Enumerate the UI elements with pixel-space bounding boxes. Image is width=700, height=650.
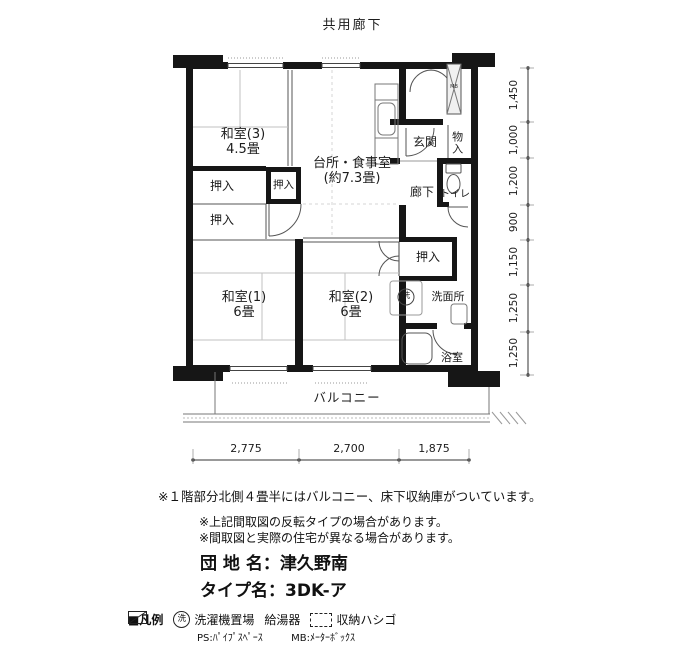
room-toilet: トイレ [438, 189, 472, 201]
closet-d-label: 押入 [403, 251, 453, 265]
dim-right-6: 1,250 [508, 323, 520, 383]
note-line-1: ※１階部分北側４畳半にはバルコニー、床下収納庫がついています。 [158, 486, 541, 505]
window-kitchen [322, 64, 360, 68]
room-yokushitsu: 浴室 [430, 352, 474, 365]
closet-a-label: 押入 [197, 180, 247, 194]
note-line-3: ※間取図と実際の住宅が異なる場合があります。 [199, 529, 460, 546]
room-washitsu2: 和室(2) 6畳 [301, 291, 401, 321]
window-washitsu3 [228, 64, 283, 68]
closet-d-wall-bottom [399, 276, 457, 281]
room-washitsu2-size: 6畳 [301, 306, 401, 321]
room-senmenjo: 洗面所 [418, 291, 478, 304]
note-line-2: ※上記間取図の反転タイプの場合があります。 [199, 513, 448, 530]
room-kitchen-name: 台所・食事室 [292, 157, 412, 172]
room-rouka: 廊下 [402, 186, 442, 200]
window-washitsu2 [313, 367, 371, 371]
corridor-label: 共用廊下 [300, 19, 405, 34]
meter-box-label: MB [449, 85, 459, 91]
kitchen-nook-door-arc [269, 204, 301, 236]
type-label: タイプ名： [200, 581, 285, 601]
toilet-tank [446, 164, 461, 173]
legend-washer: 洗 洗濯機置場 [173, 611, 254, 628]
room-washitsu3: 和室(3) 4.5畳 [193, 128, 293, 158]
wall-top-1 [186, 62, 228, 69]
room-washitsu3-size: 4.5畳 [193, 143, 293, 158]
closet-c-wall-bottom [266, 199, 301, 204]
legend-ladder-label: 収納ハシゴ [336, 611, 396, 628]
dim-bottom-0: 2,775 [196, 443, 296, 456]
closet-d-door-arc-top [379, 241, 399, 261]
wall-kitchen-rouka [399, 205, 406, 241]
legend-heater: 給湯器 [264, 611, 300, 628]
room-monoire: 物入 [450, 126, 463, 160]
legend-washer-label: 洗濯機置場 [194, 611, 254, 628]
pillar-bottom-right [448, 371, 500, 387]
legend-heater-label: 給湯器 [264, 611, 300, 628]
type-value: 3DK-ア [285, 581, 347, 601]
toilet-door-arc [448, 207, 468, 227]
dim-ticks-right [520, 68, 534, 375]
wall-closet-row-top [186, 166, 266, 171]
wall-bath-top [399, 323, 437, 329]
washer-mark-label: 洗 [398, 292, 414, 302]
legend-ladder: 収納ハシゴ [310, 611, 396, 628]
estate-value: 津久野南 [280, 554, 348, 574]
room-washitsu1-size: 6畳 [194, 306, 294, 321]
ground-hatch [492, 412, 526, 424]
room-washitsu2-name: 和室(2) [301, 291, 401, 306]
wall-right [471, 62, 478, 372]
washer-circle-icon: 洗 [173, 611, 190, 628]
closet-b-label: 押入 [197, 214, 247, 228]
wall-bottom-2 [287, 365, 313, 372]
window-washitsu1 [230, 367, 287, 371]
wall-bottom-3 [371, 365, 471, 372]
room-washitsu1: 和室(1) 6畳 [194, 291, 294, 321]
wall-toilet-bottom [437, 202, 449, 207]
type-name-line: タイプ名：3DK-ア [200, 576, 347, 601]
legend-mb: MB:ﾒｰﾀｰﾎﾞｯｸｽ [291, 633, 355, 644]
room-kitchen: 台所・食事室 (約7.3畳) [292, 157, 412, 187]
room-kitchen-size: (約7.3畳) [292, 172, 412, 187]
bathtub [402, 333, 432, 364]
estate-label: 団 地 名： [200, 554, 280, 574]
legend: ■凡例 洗 洗濯機置場 給湯器 収納ハシゴ [128, 611, 396, 628]
wall-kitchen-genkan [399, 62, 406, 120]
closet-d-wall-top [399, 237, 457, 242]
floor-plan-drawing [0, 0, 700, 650]
room-genkan: 玄関 [405, 136, 445, 150]
wall-top-2 [283, 62, 322, 69]
balcony-label: バルコニー [297, 391, 397, 405]
wall-left [186, 62, 193, 372]
ladder-icon [310, 613, 332, 627]
legend-ps: PS:ﾊﾟｲﾌﾟｽﾍﾟｰｽ [197, 633, 263, 644]
room-washitsu1-name: 和室(1) [194, 291, 294, 306]
room-washitsu3-name: 和室(3) [193, 128, 293, 143]
entry-door-arc-left [410, 70, 432, 92]
heater-icon [128, 611, 147, 624]
estate-name-line: 団 地 名：津久野南 [200, 549, 348, 574]
closet-c-label: 押入 [266, 179, 301, 191]
wall-bottom-1 [186, 365, 230, 372]
legend-abbrev: PS:ﾊﾟｲﾌﾟｽﾍﾟｰｽ MB:ﾒｰﾀｰﾎﾞｯｸｽ [197, 629, 355, 644]
dim-bottom-2: 1,875 [384, 443, 484, 456]
vanity-sink [451, 304, 467, 324]
floor-plan-page: 共用廊下 和室(3) 4.5畳 台所・食事室 (約7.3畳) 玄関 物入 廊下 … [0, 0, 700, 650]
